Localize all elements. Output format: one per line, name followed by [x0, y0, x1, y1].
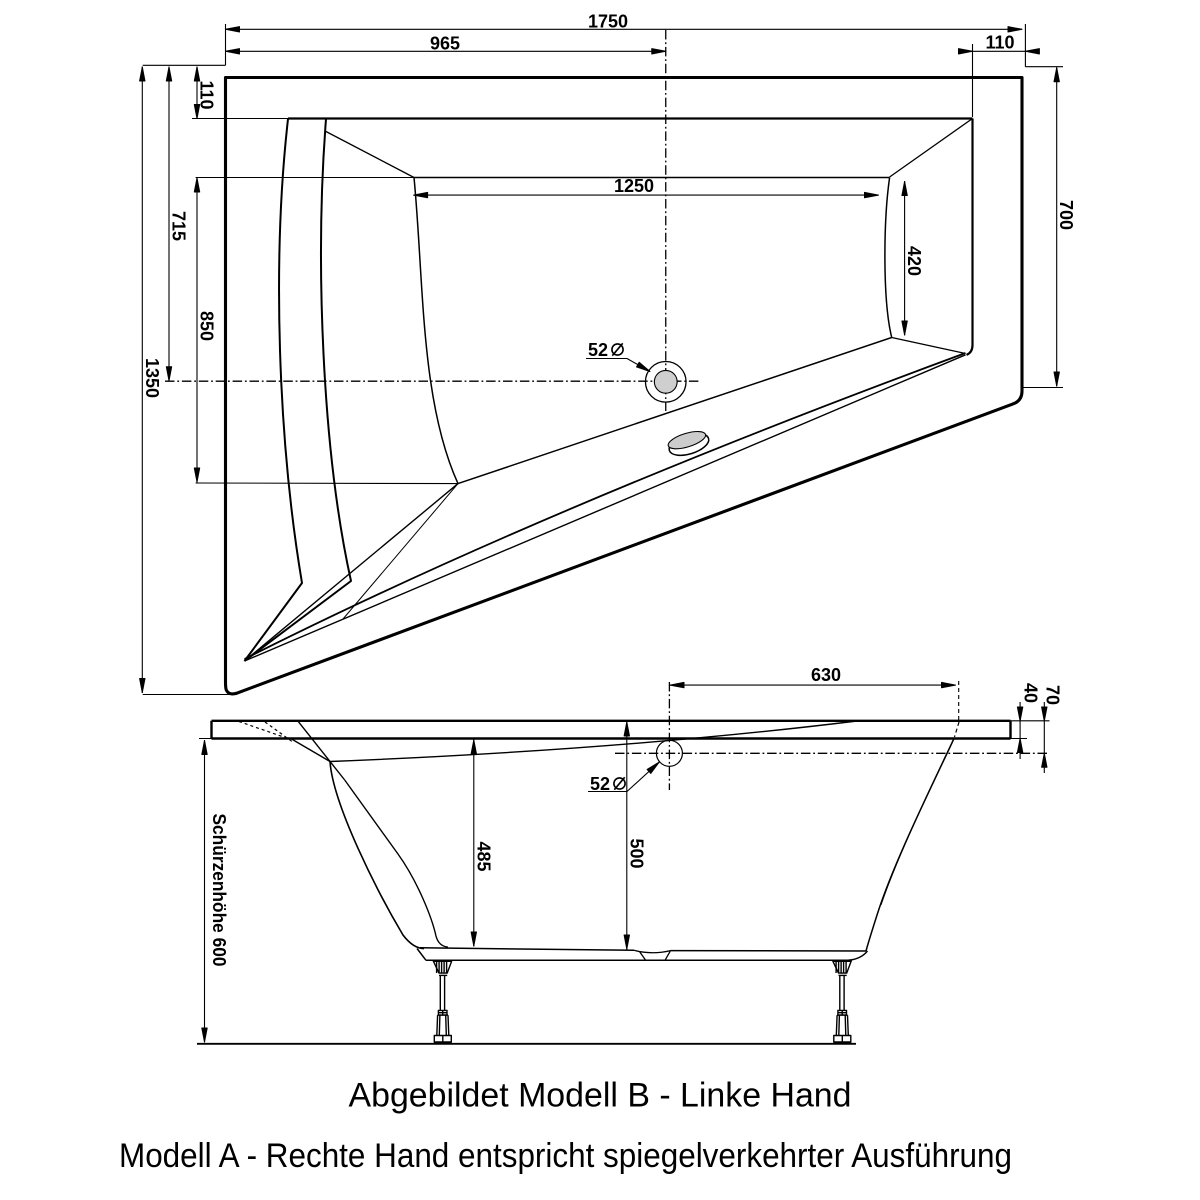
svg-text:715: 715	[169, 211, 189, 241]
svg-text:52: 52	[590, 774, 610, 794]
svg-text:500: 500	[626, 838, 646, 868]
svg-text:Schürzenhöhe 600: Schürzenhöhe 600	[209, 814, 229, 967]
svg-text:Abgebildet Modell B - Linke Ha: Abgebildet Modell B - Linke Hand	[349, 1077, 852, 1115]
svg-text:700: 700	[1056, 200, 1076, 230]
svg-text:70: 70	[1043, 685, 1063, 705]
svg-text:1250: 1250	[614, 176, 654, 196]
svg-text:485: 485	[473, 841, 493, 871]
svg-text:850: 850	[197, 311, 217, 341]
svg-text:965: 965	[430, 34, 460, 54]
svg-text:1750: 1750	[588, 12, 628, 32]
svg-text:40: 40	[1021, 683, 1041, 703]
svg-text:52: 52	[588, 340, 608, 360]
svg-text:110: 110	[197, 80, 217, 109]
svg-text:1350: 1350	[142, 358, 162, 398]
svg-text:110: 110	[985, 33, 1014, 53]
svg-text:630: 630	[811, 665, 841, 685]
svg-text:420: 420	[904, 246, 924, 276]
svg-text:Modell A - Rechte Hand entspri: Modell A - Rechte Hand entspricht spiege…	[119, 1137, 1012, 1175]
